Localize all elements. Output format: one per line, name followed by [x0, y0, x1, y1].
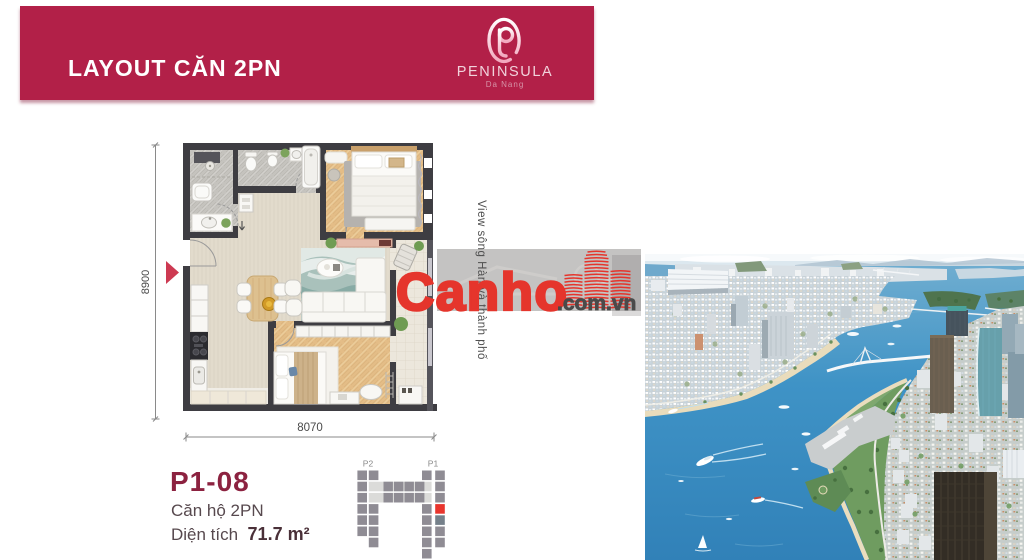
svg-text:P2: P2 — [363, 459, 374, 469]
svg-text:8900: 8900 — [140, 270, 152, 294]
svg-text:8070: 8070 — [297, 422, 323, 434]
svg-text:P1: P1 — [428, 459, 439, 469]
